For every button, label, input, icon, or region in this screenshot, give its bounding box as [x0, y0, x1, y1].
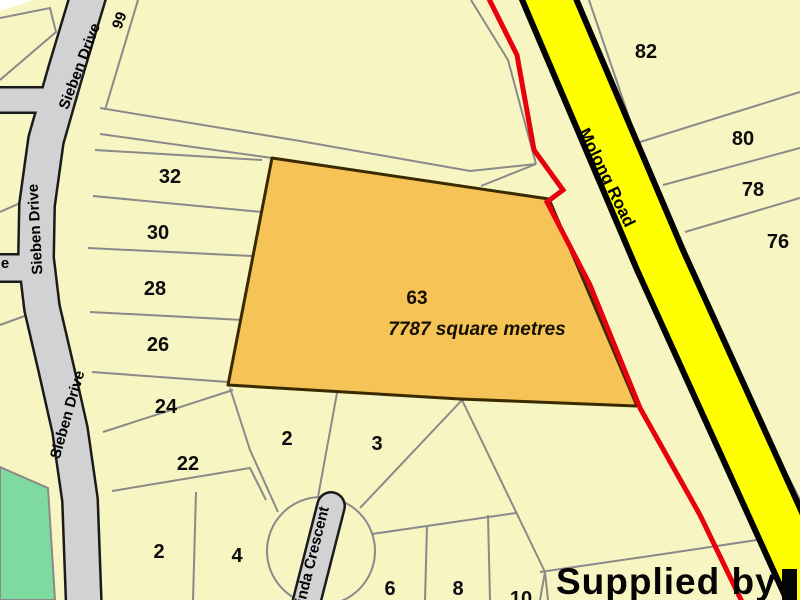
lot-label-30: 30 [147, 222, 169, 244]
cadastral-map[interactable]: 99 32 30 28 26 24 22 2 4 2 3 6 8 10 82 8… [0, 0, 800, 600]
lot-label-82: 82 [635, 41, 657, 63]
lot-label-4: 4 [231, 545, 243, 567]
lot-label-10: 10 [510, 588, 532, 600]
lot-label-76: 76 [767, 231, 789, 253]
lot-label-63: 63 [406, 288, 427, 309]
lot-label-80: 80 [732, 128, 754, 150]
left-street-partial-label: e [1, 255, 9, 272]
watermark-text: Supplied by [556, 561, 777, 600]
park-area [0, 467, 55, 600]
lot-label-3: 3 [371, 433, 382, 455]
lot-label-8: 8 [452, 578, 463, 600]
lot-label-22: 22 [177, 453, 199, 475]
lot-label-24: 24 [155, 396, 178, 418]
lot-label-26: 26 [147, 334, 169, 356]
lot-63-area-label: 7787 square metres [388, 319, 565, 340]
map-canvas: 99 32 30 28 26 24 22 2 4 2 3 6 8 10 82 8… [0, 0, 800, 600]
lot-label-2-mid: 2 [281, 428, 292, 450]
watermark-partial-letter [782, 569, 797, 600]
lot-label-28: 28 [144, 278, 166, 300]
lot-label-6: 6 [384, 578, 395, 600]
lot-label-78: 78 [742, 179, 764, 201]
lot-label-32: 32 [159, 166, 181, 188]
lot-label-2-left: 2 [153, 541, 164, 563]
